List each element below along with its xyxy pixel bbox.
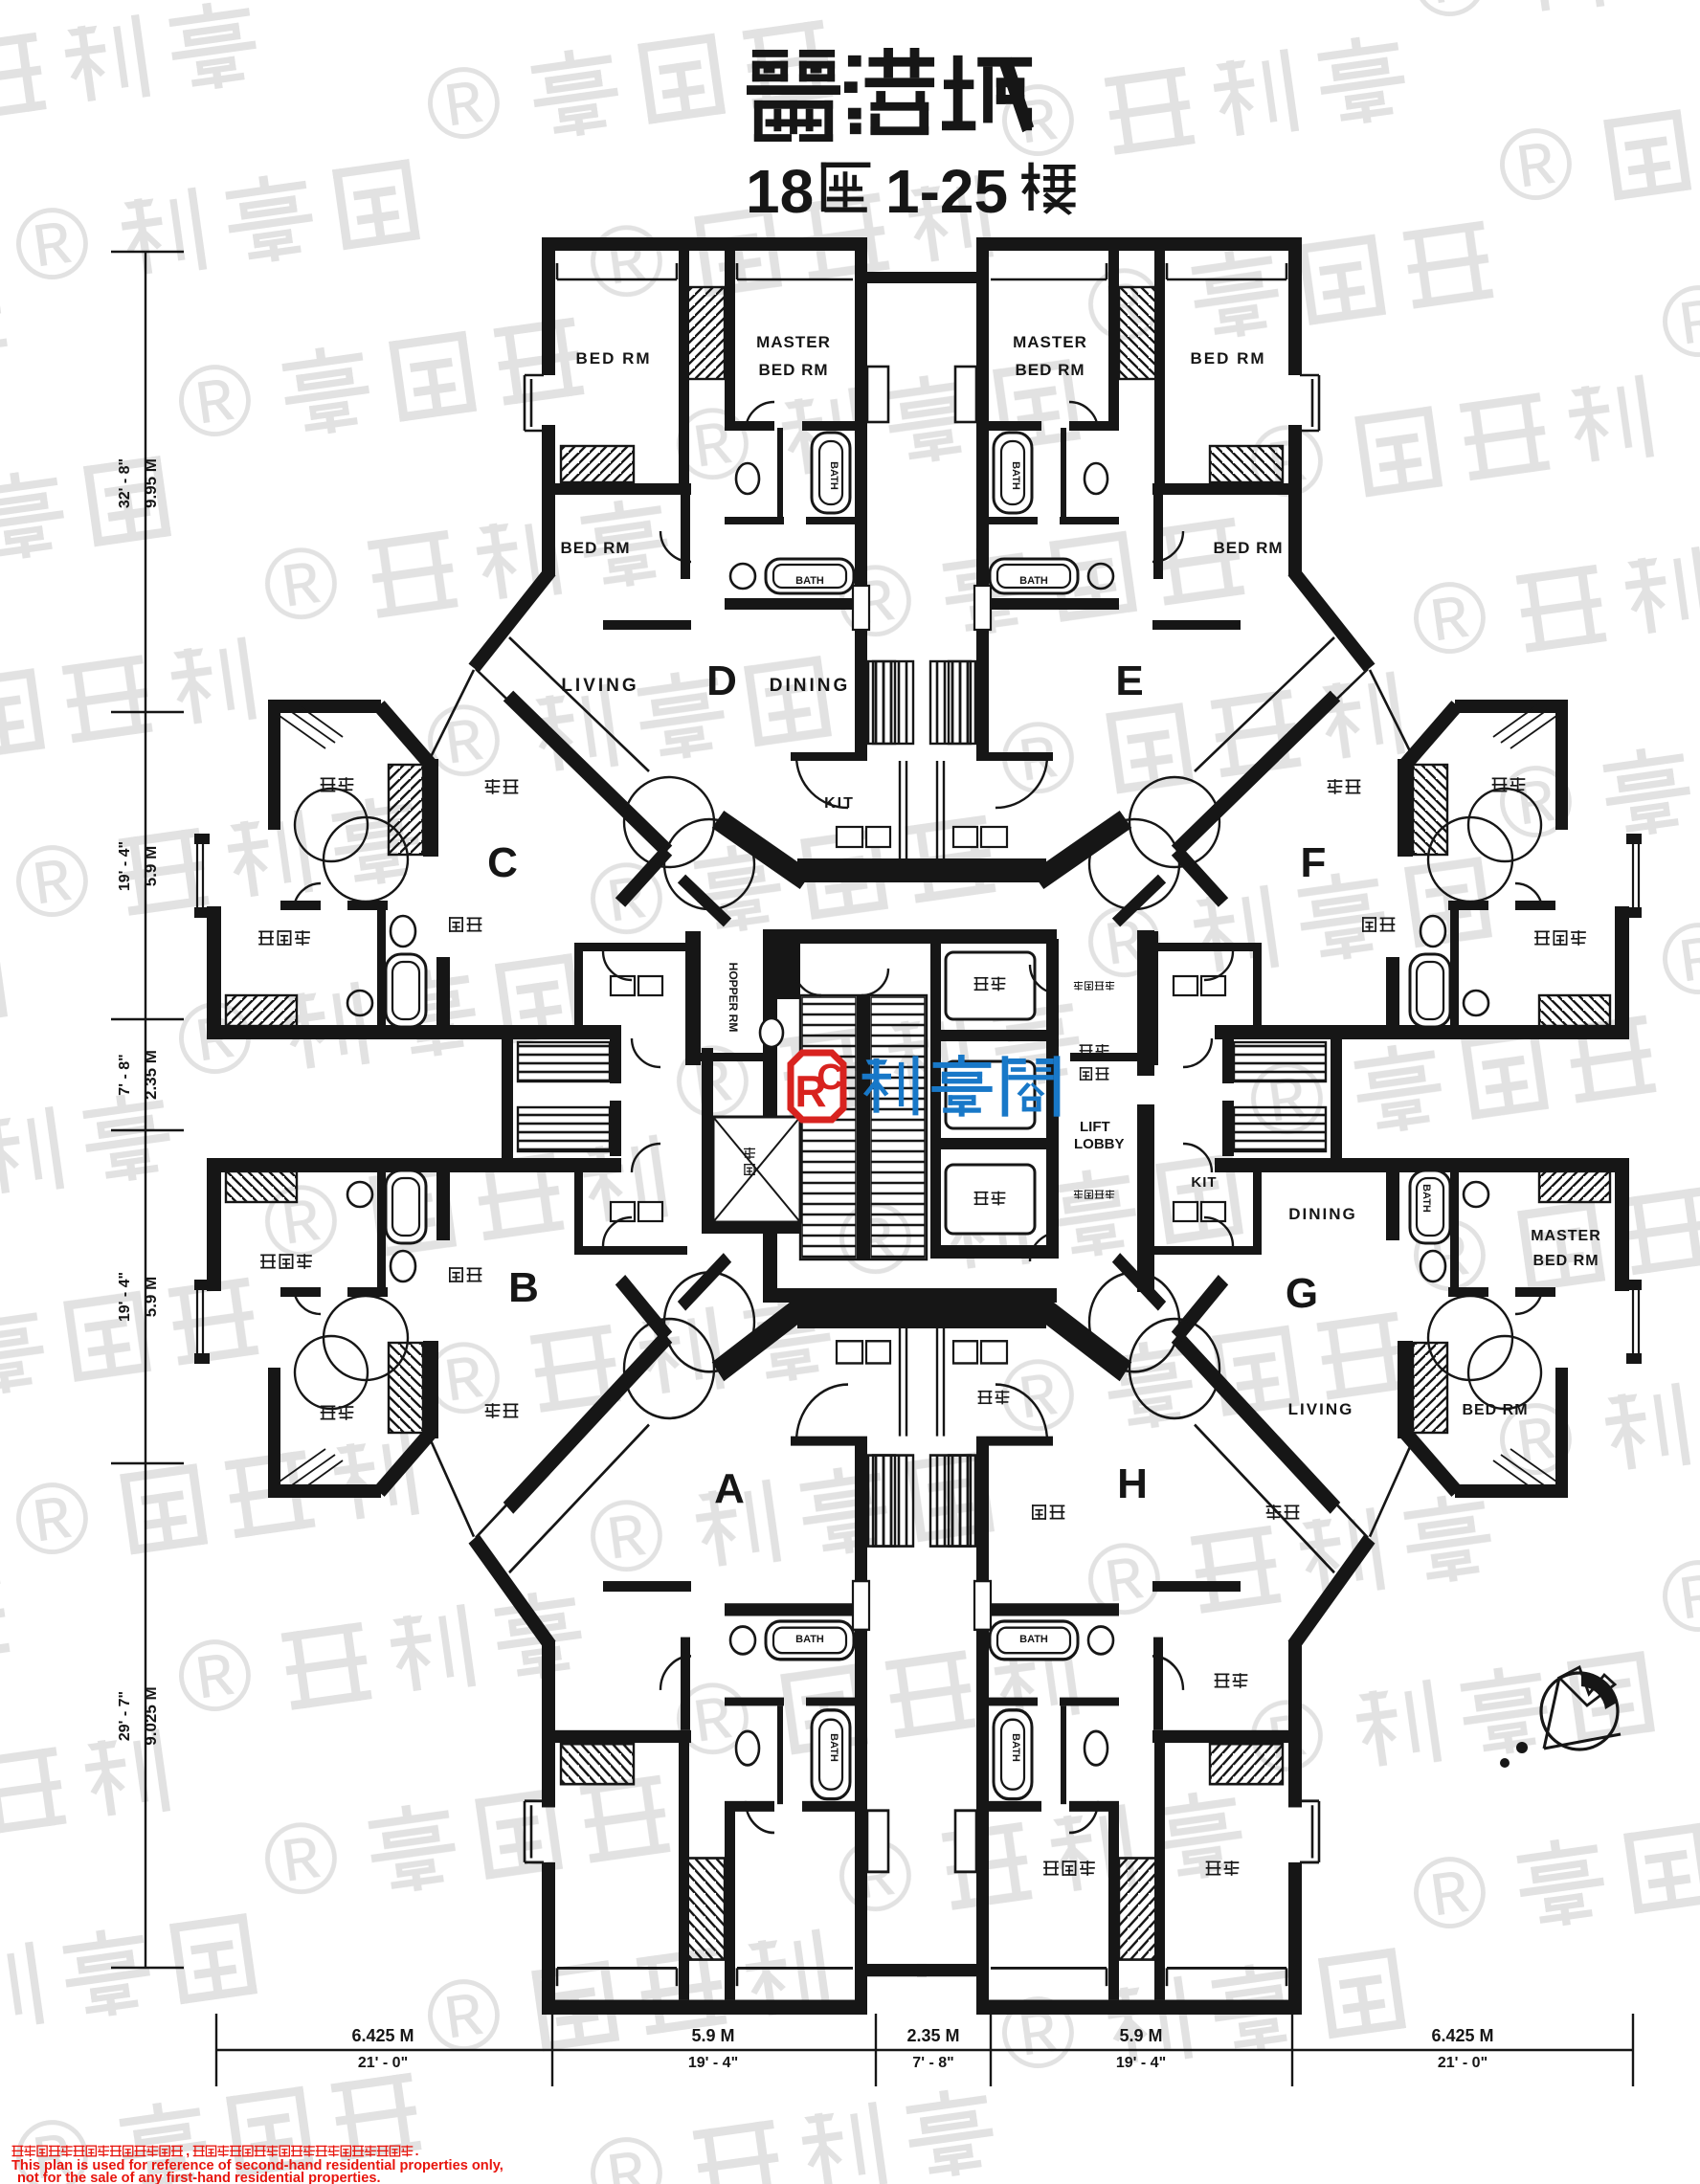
svg-text:5.9 M: 5.9 M (142, 846, 160, 887)
svg-text:C: C (816, 1058, 842, 1098)
svg-text:LIFT: LIFT (1080, 1119, 1110, 1135)
svg-text:9.95 M: 9.95 M (142, 458, 160, 508)
svg-text:BED RM: BED RM (758, 361, 828, 379)
svg-text:BED RM: BED RM (1462, 1402, 1528, 1418)
svg-text:21' - 0": 21' - 0" (1438, 2055, 1487, 2071)
svg-text:5.9 M: 5.9 M (1119, 2026, 1162, 2045)
svg-text:.: . (415, 2143, 419, 2158)
svg-text:BED RM: BED RM (1015, 361, 1085, 379)
svg-text:29' - 7": 29' - 7" (117, 1691, 133, 1741)
svg-text:MASTER: MASTER (756, 333, 831, 351)
svg-text:®: ® (419, 1954, 509, 2077)
svg-text:6.425 M: 6.425 M (1431, 2026, 1493, 2045)
svg-text:7' - 8": 7' - 8" (117, 1054, 133, 1095)
svg-text:BATH: BATH (1420, 1184, 1432, 1213)
svg-text:19' - 4": 19' - 4" (1116, 2055, 1166, 2071)
svg-text:LOBBY: LOBBY (1074, 1136, 1125, 1152)
svg-text:6.425 M: 6.425 M (351, 2026, 414, 2045)
svg-text:®: ® (1405, 1832, 1495, 1954)
svg-text:®: ® (994, 1972, 1084, 2094)
svg-text:BATH: BATH (795, 1634, 824, 1645)
svg-text:32' - 8": 32' - 8" (117, 458, 133, 508)
svg-text:not for the sale of any first-: not for the sale of any first-hand resid… (17, 2171, 381, 2184)
svg-text:BED RM: BED RM (1532, 1253, 1599, 1269)
svg-text:BATH: BATH (1010, 461, 1021, 490)
svg-text:®: ® (1080, 1518, 1170, 1640)
svg-text:2.35 M: 2.35 M (906, 2026, 959, 2045)
svg-text:19' - 4": 19' - 4" (688, 2055, 738, 2071)
svg-text:7' - 8": 7' - 8" (912, 2055, 953, 2071)
svg-text:DINING: DINING (770, 676, 851, 696)
svg-text:,: , (186, 2143, 190, 2158)
svg-text:G: G (1286, 1270, 1318, 1317)
svg-text:MASTER: MASTER (1013, 333, 1087, 351)
svg-text:BED RM: BED RM (560, 539, 630, 557)
svg-text:®: ® (170, 340, 260, 462)
svg-text:®: ® (257, 1797, 347, 1920)
svg-text:21' - 0": 21' - 0" (358, 2055, 408, 2071)
svg-text:BATH: BATH (1010, 1733, 1021, 1762)
svg-text:KIT: KIT (824, 795, 855, 812)
svg-text:18: 18 (746, 157, 814, 226)
svg-text:KIT: KIT (1191, 1174, 1217, 1191)
svg-text:A: A (714, 1465, 745, 1512)
svg-text:5.9 M: 5.9 M (691, 2026, 734, 2045)
svg-text:BED RM: BED RM (575, 349, 651, 368)
svg-text:®: ® (257, 523, 347, 645)
svg-text:LIVING: LIVING (1288, 1400, 1354, 1418)
svg-text:®: ® (170, 1615, 260, 1737)
svg-text:DINING: DINING (1288, 1205, 1357, 1223)
svg-text:1-25: 1-25 (885, 157, 1008, 226)
svg-text:®: ® (8, 1458, 98, 1580)
svg-text:BED RM: BED RM (1213, 539, 1283, 557)
svg-text:BATH: BATH (828, 461, 839, 490)
svg-text:2.35 M: 2.35 M (142, 1050, 160, 1100)
svg-text:BATH: BATH (828, 1733, 839, 1762)
svg-text:BATH: BATH (1019, 1634, 1048, 1645)
svg-text:LIVING: LIVING (561, 676, 638, 696)
svg-text:9.025 M: 9.025 M (142, 1686, 160, 1745)
svg-text:BED RM: BED RM (1190, 349, 1265, 368)
svg-text:®: ® (8, 183, 98, 305)
svg-text:®: ® (419, 42, 509, 165)
svg-text:5.9 M: 5.9 M (142, 1277, 160, 1318)
svg-text:19' - 4": 19' - 4" (117, 1272, 133, 1322)
svg-text:®: ® (8, 820, 98, 943)
svg-text:®: ® (582, 1475, 672, 1597)
svg-text:E: E (1115, 657, 1143, 704)
svg-text:®: ® (582, 200, 672, 323)
svg-text:H: H (1117, 1460, 1148, 1507)
svg-text:MASTER: MASTER (1531, 1228, 1601, 1244)
svg-text:B: B (508, 1264, 539, 1311)
svg-text:F: F (1301, 839, 1327, 886)
svg-text:HOPPER RM: HOPPER RM (727, 963, 740, 1033)
svg-text:BATH: BATH (795, 575, 824, 587)
svg-text:®: ® (1491, 103, 1581, 226)
svg-text:19' - 4": 19' - 4" (117, 841, 133, 891)
svg-text:D: D (706, 657, 737, 704)
svg-text:®: ® (1405, 557, 1495, 680)
svg-text:BATH: BATH (1019, 575, 1048, 587)
svg-text:C: C (487, 839, 518, 886)
